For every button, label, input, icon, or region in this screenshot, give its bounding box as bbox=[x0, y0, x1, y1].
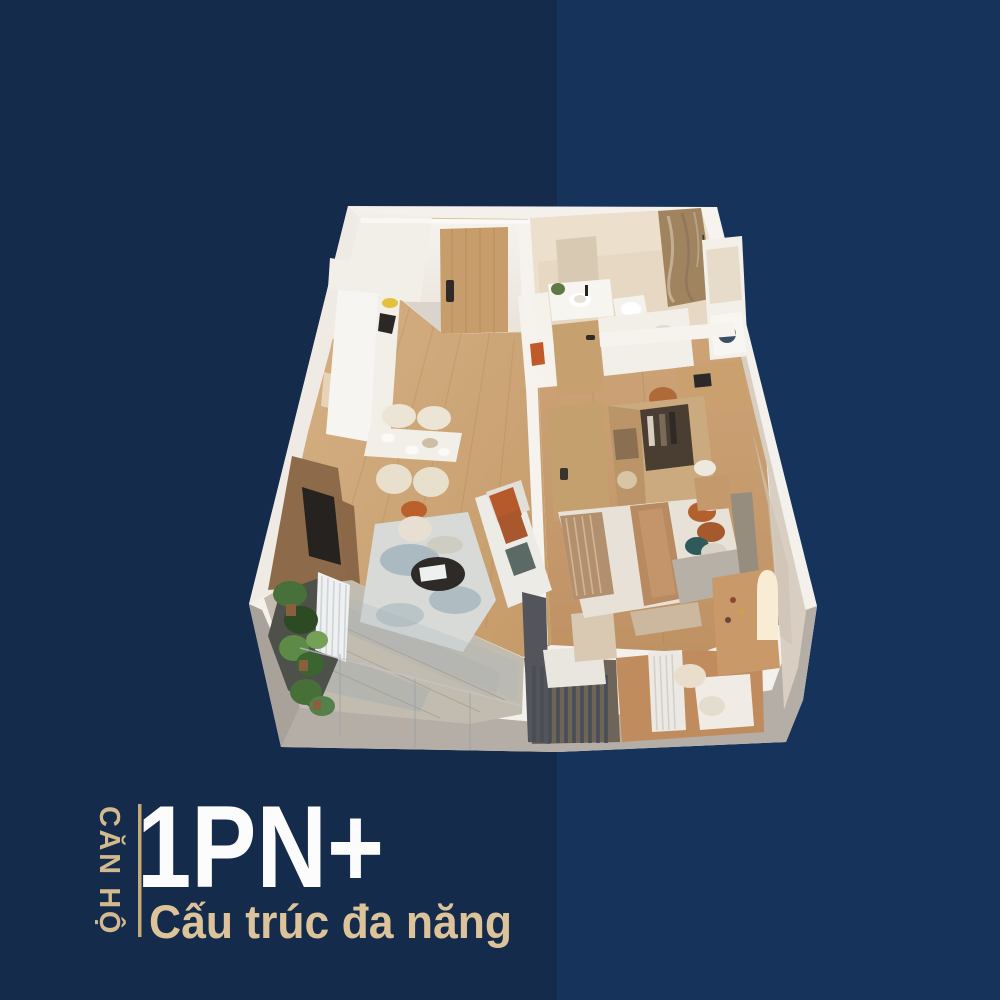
svg-text:CĂN HỘ: CĂN HỘ bbox=[93, 806, 127, 936]
svg-text:Cấu trúc đa năng: Cấu trúc đa năng bbox=[149, 895, 512, 948]
svg-text:1PN+: 1PN+ bbox=[137, 781, 384, 912]
